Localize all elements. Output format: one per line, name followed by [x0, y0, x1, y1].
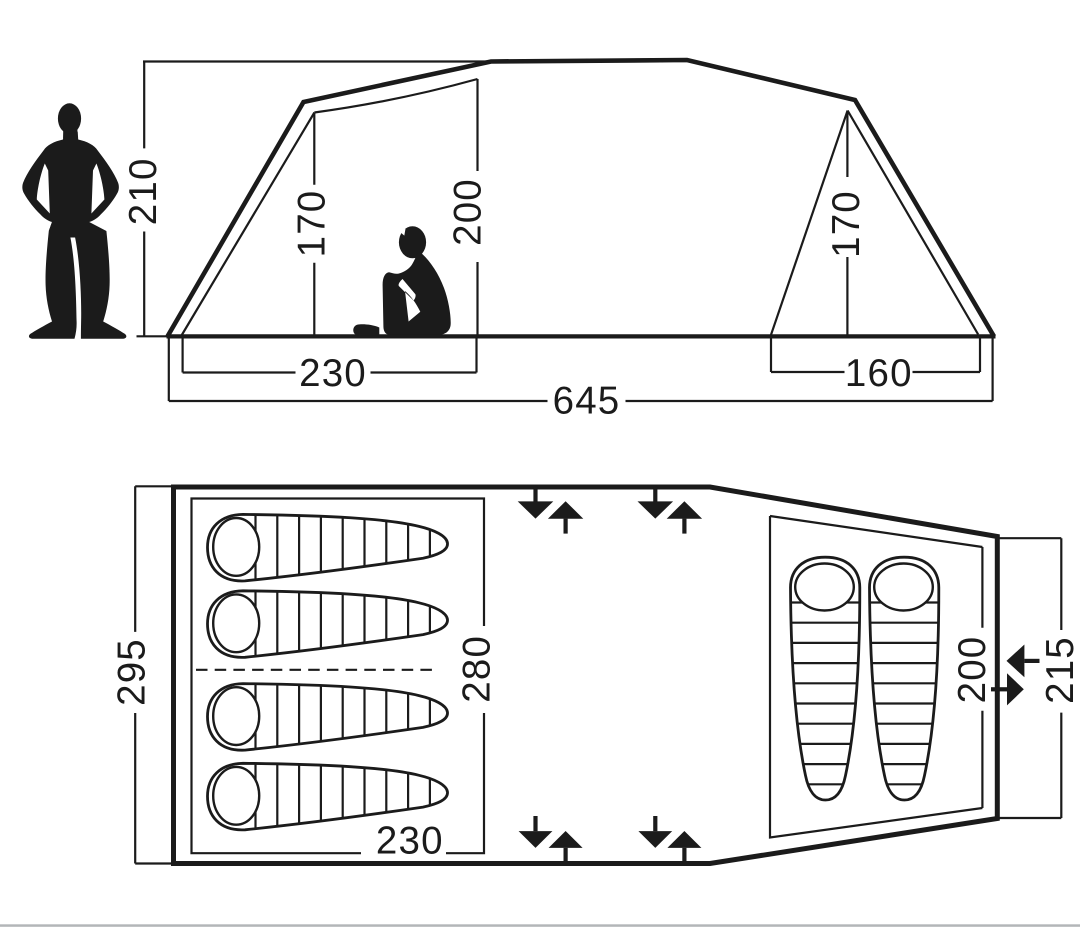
svg-text:295: 295 [111, 638, 154, 706]
svg-text:160: 160 [845, 352, 913, 395]
svg-text:230: 230 [376, 820, 444, 863]
svg-text:200: 200 [447, 178, 490, 246]
svg-text:280: 280 [455, 635, 498, 703]
svg-text:645: 645 [553, 379, 621, 422]
svg-text:215: 215 [1039, 636, 1080, 704]
svg-text:170: 170 [290, 190, 333, 258]
svg-text:170: 170 [825, 190, 868, 258]
svg-text:200: 200 [951, 636, 994, 704]
svg-text:230: 230 [299, 352, 367, 395]
svg-text:210: 210 [122, 157, 165, 225]
